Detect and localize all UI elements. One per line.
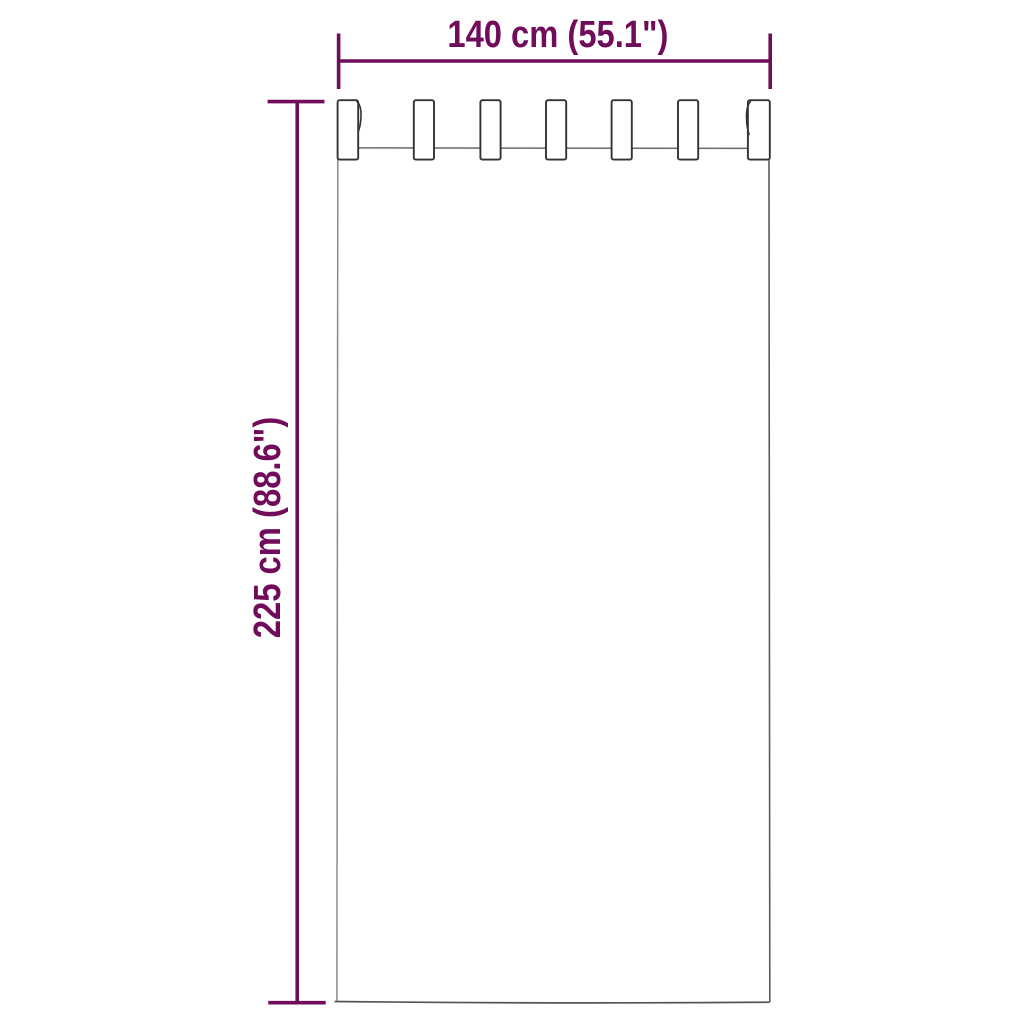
- svg-text:140 cm (55.1"): 140 cm (55.1"): [447, 14, 668, 56]
- svg-text:225 cm (88.6"): 225 cm (88.6"): [247, 417, 289, 639]
